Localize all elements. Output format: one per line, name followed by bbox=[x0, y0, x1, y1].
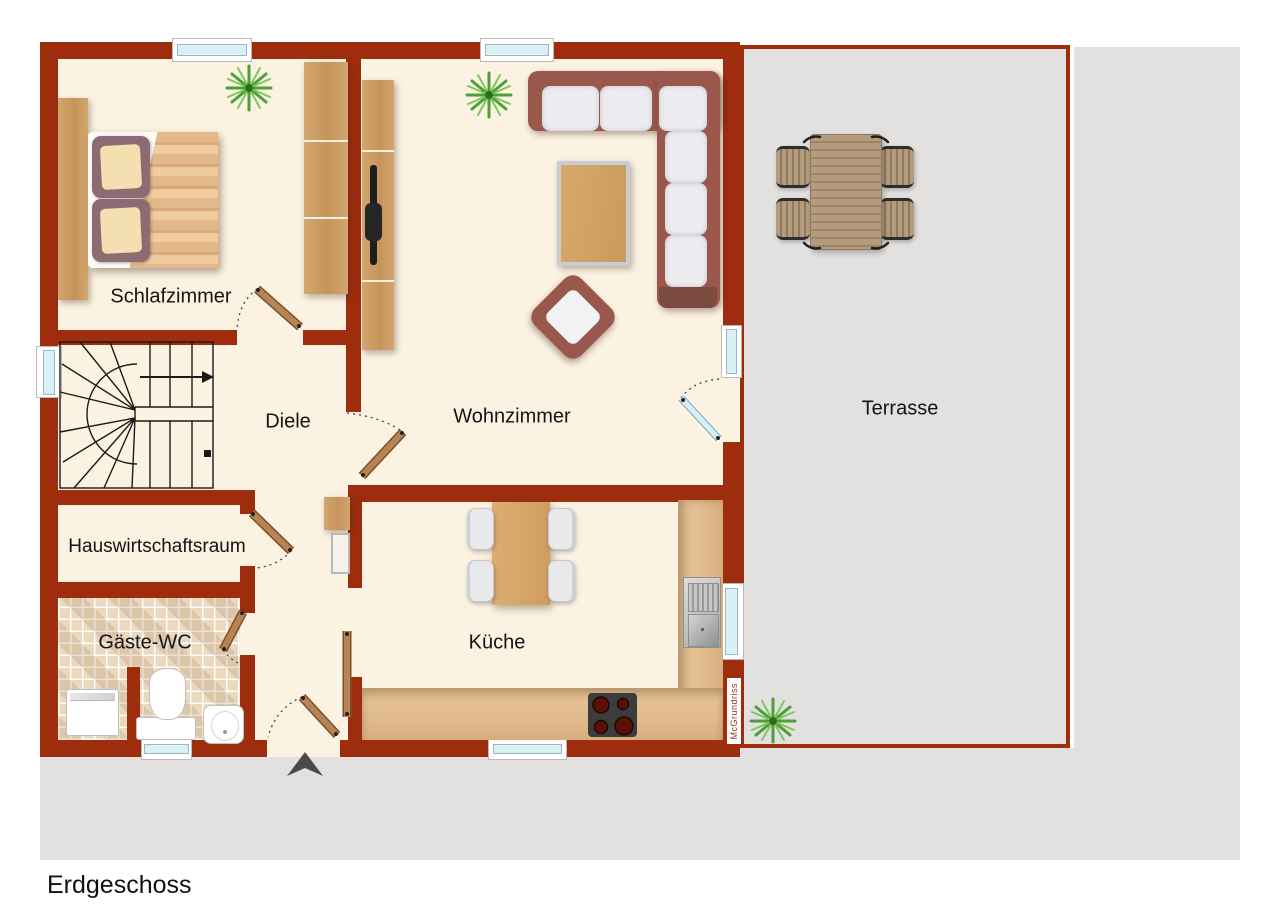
label-kueche: Küche bbox=[469, 632, 526, 655]
window-glass bbox=[493, 744, 561, 755]
wall-hwr-north bbox=[58, 490, 255, 505]
wall-bedroom-south-left bbox=[58, 330, 237, 345]
sofa-cushion bbox=[600, 86, 652, 131]
window-glass bbox=[43, 350, 56, 395]
bed-headboard bbox=[58, 98, 88, 300]
label-wohnzimmer: Wohnzimmer bbox=[453, 406, 570, 429]
toilet-tank bbox=[136, 717, 196, 740]
basin-drain bbox=[223, 730, 227, 734]
window-glass bbox=[177, 44, 246, 56]
bed-pillow bbox=[92, 199, 150, 262]
wall-top bbox=[40, 42, 740, 59]
wall-left bbox=[40, 42, 58, 757]
hand-basin bbox=[203, 705, 244, 744]
window-stairs-west bbox=[36, 346, 62, 398]
floor-plan: Schlafzimmer Diele Wohnzimmer Hauswirtsc… bbox=[0, 0, 1280, 905]
toilet bbox=[149, 668, 186, 720]
label-gaeste-wc: Gäste-WC bbox=[98, 632, 191, 655]
sideboard-divider bbox=[362, 280, 394, 282]
terrace-chair bbox=[776, 198, 810, 240]
sofa-end-cap bbox=[659, 287, 717, 308]
sofa-cushion bbox=[665, 183, 707, 235]
kitchen-chair bbox=[467, 508, 494, 550]
basin-oval bbox=[211, 711, 239, 741]
pillow-inner bbox=[100, 207, 142, 254]
sink-drainboard bbox=[688, 583, 719, 612]
wall-kueche-west-upper bbox=[348, 502, 362, 588]
entrance-opening bbox=[267, 740, 340, 757]
kitchen-chair bbox=[548, 508, 575, 550]
terrace-chair bbox=[776, 146, 810, 188]
terrace-chair bbox=[880, 146, 914, 188]
hall-shelf bbox=[324, 497, 350, 530]
label-diele: Diele bbox=[265, 411, 311, 434]
sofa-cushion bbox=[659, 86, 707, 131]
wall-kueche-west-lower bbox=[348, 677, 362, 740]
window-glass bbox=[725, 588, 737, 655]
sofa-cushion bbox=[665, 131, 707, 183]
kitchen-table bbox=[492, 502, 550, 605]
window-glass bbox=[485, 44, 549, 56]
window-glass bbox=[726, 329, 736, 375]
sofa-cushion bbox=[665, 235, 707, 287]
stove-hob bbox=[588, 693, 637, 737]
label-schlafzimmer: Schlafzimmer bbox=[110, 286, 231, 309]
sideboard-divider bbox=[362, 150, 394, 152]
wardrobe-divider bbox=[304, 140, 348, 142]
kitchen-chair bbox=[467, 560, 494, 602]
terrace-door-opening bbox=[723, 378, 740, 442]
wall-wc-north bbox=[58, 582, 240, 598]
kitchen-chair bbox=[548, 560, 575, 602]
wall-hwr-east-upper bbox=[240, 490, 255, 514]
sink-drain-dot bbox=[701, 628, 704, 631]
yard-right bbox=[1074, 47, 1240, 860]
washer-control-panel bbox=[70, 693, 115, 701]
hall-bench bbox=[331, 533, 350, 574]
label-terrasse: Terrasse bbox=[862, 398, 939, 421]
window-wc-south bbox=[141, 738, 192, 760]
kitchen-sink bbox=[683, 577, 721, 648]
wall-diele-wohnzimmer bbox=[346, 59, 361, 412]
sofa-cushion bbox=[542, 86, 599, 131]
pillow-inner bbox=[100, 144, 142, 190]
watermark: McGrundriss bbox=[727, 678, 741, 744]
washing-machine bbox=[66, 689, 119, 736]
sideboard bbox=[362, 80, 394, 350]
wardrobe bbox=[304, 62, 348, 294]
label-hauswirtschaftsraum: Hauswirtschaftsraum bbox=[68, 536, 245, 558]
coffee-table bbox=[557, 161, 630, 266]
yard-bottom bbox=[40, 748, 1240, 860]
watermark-text: McGrundriss bbox=[729, 683, 739, 740]
terrace-chair bbox=[880, 198, 914, 240]
wardrobe-divider bbox=[304, 217, 348, 219]
wall-hwr-east-lower bbox=[240, 566, 255, 613]
bed-pillow bbox=[92, 136, 150, 198]
window-wohnzimmer-north bbox=[480, 38, 554, 62]
terrace-door-sidelight bbox=[721, 325, 742, 378]
window-bedroom-north bbox=[172, 38, 252, 62]
armchair-cushion bbox=[543, 287, 602, 346]
floor-name: Erdgeschoss bbox=[47, 871, 192, 900]
window-kueche-south bbox=[488, 738, 567, 760]
window-glass bbox=[144, 744, 188, 755]
kitchen-counter-south bbox=[362, 688, 723, 740]
terrace-table bbox=[810, 134, 882, 250]
